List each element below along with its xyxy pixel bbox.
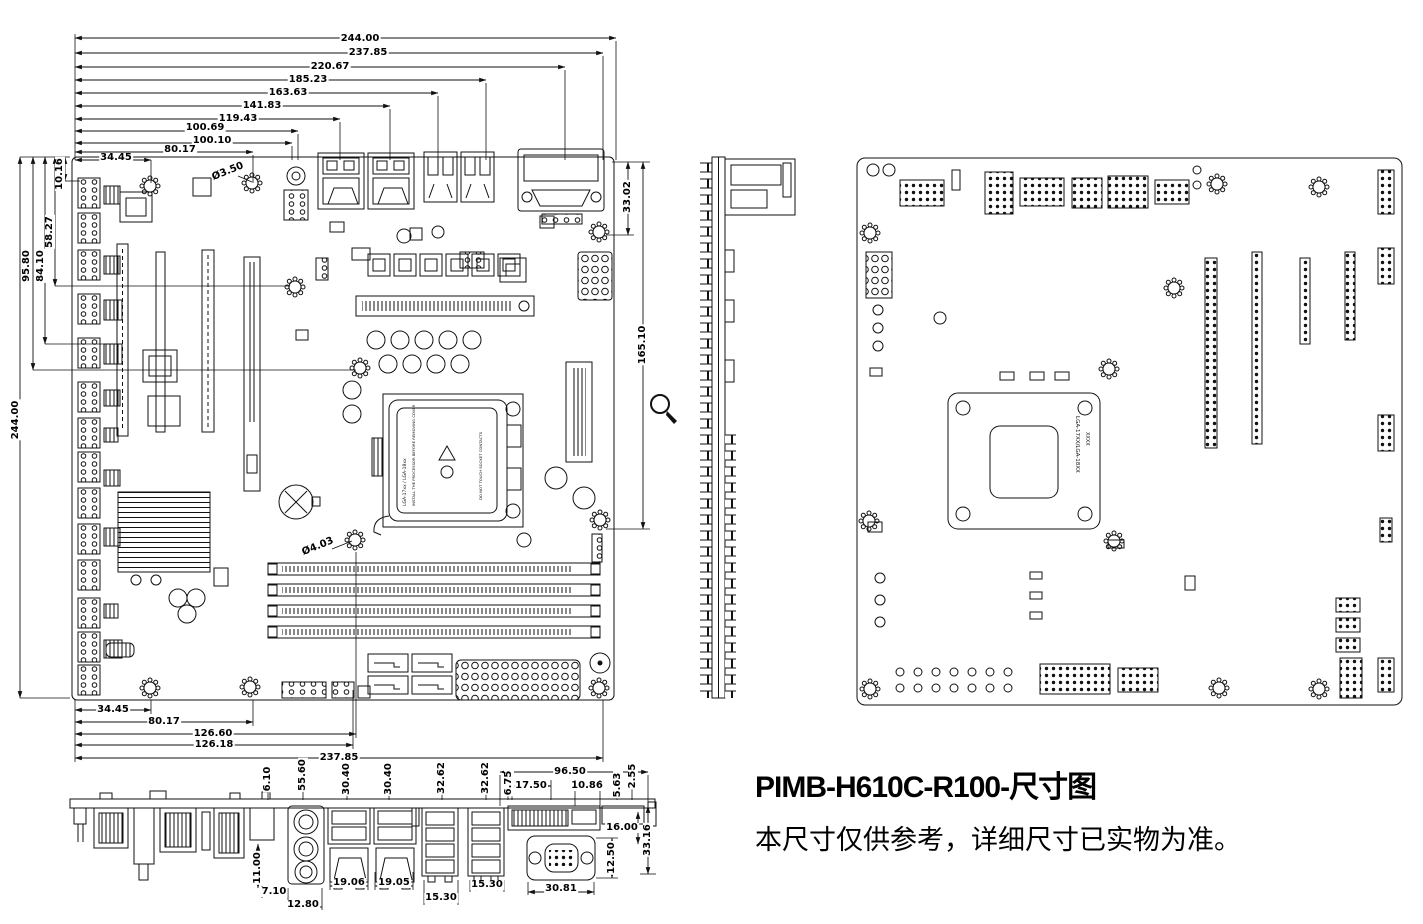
dim-right-33: 33.02 xyxy=(623,180,633,214)
dim-edge-1530b: 15.30 xyxy=(470,880,504,890)
dim-top-34: 34.45 xyxy=(99,153,133,163)
dim-edge-5560: 55.60 xyxy=(298,758,308,792)
board-outline-back xyxy=(857,158,1402,705)
dim-top-163: 163.63 xyxy=(268,88,309,98)
dim-edge-3262b: 32.62 xyxy=(481,761,491,795)
dim-edge-1100: 11.00 xyxy=(253,851,263,885)
dim-bot-34: 34.45 xyxy=(96,705,130,715)
dim-edge-1250: 12.50 xyxy=(607,841,617,875)
drawing-title: PIMB-H610C-R100-尺寸图 xyxy=(755,762,1315,806)
dim-bot-237: 237.85 xyxy=(319,753,360,763)
ps2-stack xyxy=(288,806,324,884)
drawing-note: 本尺寸仅供参考，详细尺寸已实物为准。 xyxy=(755,818,1315,857)
dim-top-80: 80.17 xyxy=(163,145,197,155)
dim-top-237: 237.85 xyxy=(348,48,389,58)
board-edge-bar xyxy=(70,799,655,808)
dim-left-58: 58.27 xyxy=(45,215,55,249)
front-panel-header xyxy=(282,682,326,698)
dim-edge-3040b: 30.40 xyxy=(384,762,394,796)
dim-left-244: 244.00 xyxy=(11,400,21,441)
socket-type-label: LGA-17xx / LGA-18xx xyxy=(402,458,408,506)
edge-usb-quad-stack xyxy=(412,808,504,882)
dim-edge-9650: 96.50 xyxy=(553,767,587,777)
side-view xyxy=(700,157,795,698)
dim-top-100a: 100.69 xyxy=(185,123,226,133)
pin-header-column xyxy=(78,178,122,695)
backplate-label: LGA-17XX/LGA-18XX xyxy=(1074,416,1080,473)
dim-edge-563: 5.63 xyxy=(613,772,623,799)
title-block: PIMB-H610C-R100-尺寸图 本尺寸仅供参考，详细尺寸已实物为准。 xyxy=(755,762,1315,857)
dim-right-165: 165.10 xyxy=(638,325,648,366)
dim-top-100b: 100.10 xyxy=(192,136,233,146)
dim-edge-1905: 19.05 xyxy=(377,878,411,888)
dim-top-244: 244.00 xyxy=(340,34,381,44)
side-component-comb xyxy=(725,430,736,698)
dim-bot-126a: 126.60 xyxy=(193,729,234,739)
dim-edge-1086: 10.86 xyxy=(570,781,604,791)
atx-24pin-connector xyxy=(456,660,580,700)
atx-8pin-connector xyxy=(578,252,612,300)
dim-edge-3040a: 30.40 xyxy=(342,762,352,796)
dim-left-10: 10.16 xyxy=(55,157,65,191)
dim-edge-255: 2.55 xyxy=(628,763,638,790)
dim-top-141: 141.83 xyxy=(242,101,283,111)
socket-caution-label: DO NOT TOUCH SOCKET CONTACTS xyxy=(478,431,483,500)
side-io-block xyxy=(725,159,795,215)
dim-edge-675: 6.75 xyxy=(504,770,514,797)
dim-left-95: 95.80 xyxy=(22,249,32,283)
dim-edge-610: 6.10 xyxy=(263,766,273,793)
heatsink xyxy=(118,492,210,572)
hdmi-connector xyxy=(106,643,134,657)
dim-edge-710: 7.10 xyxy=(261,887,288,897)
dimension-drawing-page: LGA-17xx / LGA-18xx INSTALL THE PROCESSO… xyxy=(0,0,1423,924)
back-view: LGA-17XX/LGA-18XX XXXX xyxy=(857,158,1402,705)
dim-bot-80: 80.17 xyxy=(147,717,181,727)
fan-header xyxy=(592,534,602,562)
side-connector-comb xyxy=(700,160,712,698)
dim-left-84: 84.10 xyxy=(36,249,46,283)
dim-edge-1906: 19.06 xyxy=(332,878,366,888)
dim-edge-3316: 33.16 xyxy=(643,823,653,857)
front-view: LGA-17xx / LGA-18xx INSTALL THE PROCESSO… xyxy=(72,149,614,700)
dim-bot-126b: 126.18 xyxy=(194,740,235,750)
dim-edge-3262a: 32.62 xyxy=(437,761,447,795)
dim-edge-1280: 12.80 xyxy=(286,900,320,910)
dim-edge-1600: 16.00 xyxy=(605,823,639,833)
dim-edge-1530a: 15.30 xyxy=(424,893,458,903)
dim-edge-3081: 30.81 xyxy=(544,884,578,894)
backplate-code-label: XXXX xyxy=(1084,432,1090,446)
magnifier-icon xyxy=(651,395,677,424)
dim-top-185: 185.23 xyxy=(288,75,329,85)
edge-vga-connector xyxy=(527,836,595,880)
dim-edge-1750: 17.50 xyxy=(514,781,548,791)
socket-warning-label: INSTALL THE PROCESSOR BEFORE REMOVING CO… xyxy=(411,404,416,506)
board-outline-front xyxy=(72,157,614,700)
dim-top-220: 220.67 xyxy=(310,62,351,72)
edge-view xyxy=(70,791,656,889)
